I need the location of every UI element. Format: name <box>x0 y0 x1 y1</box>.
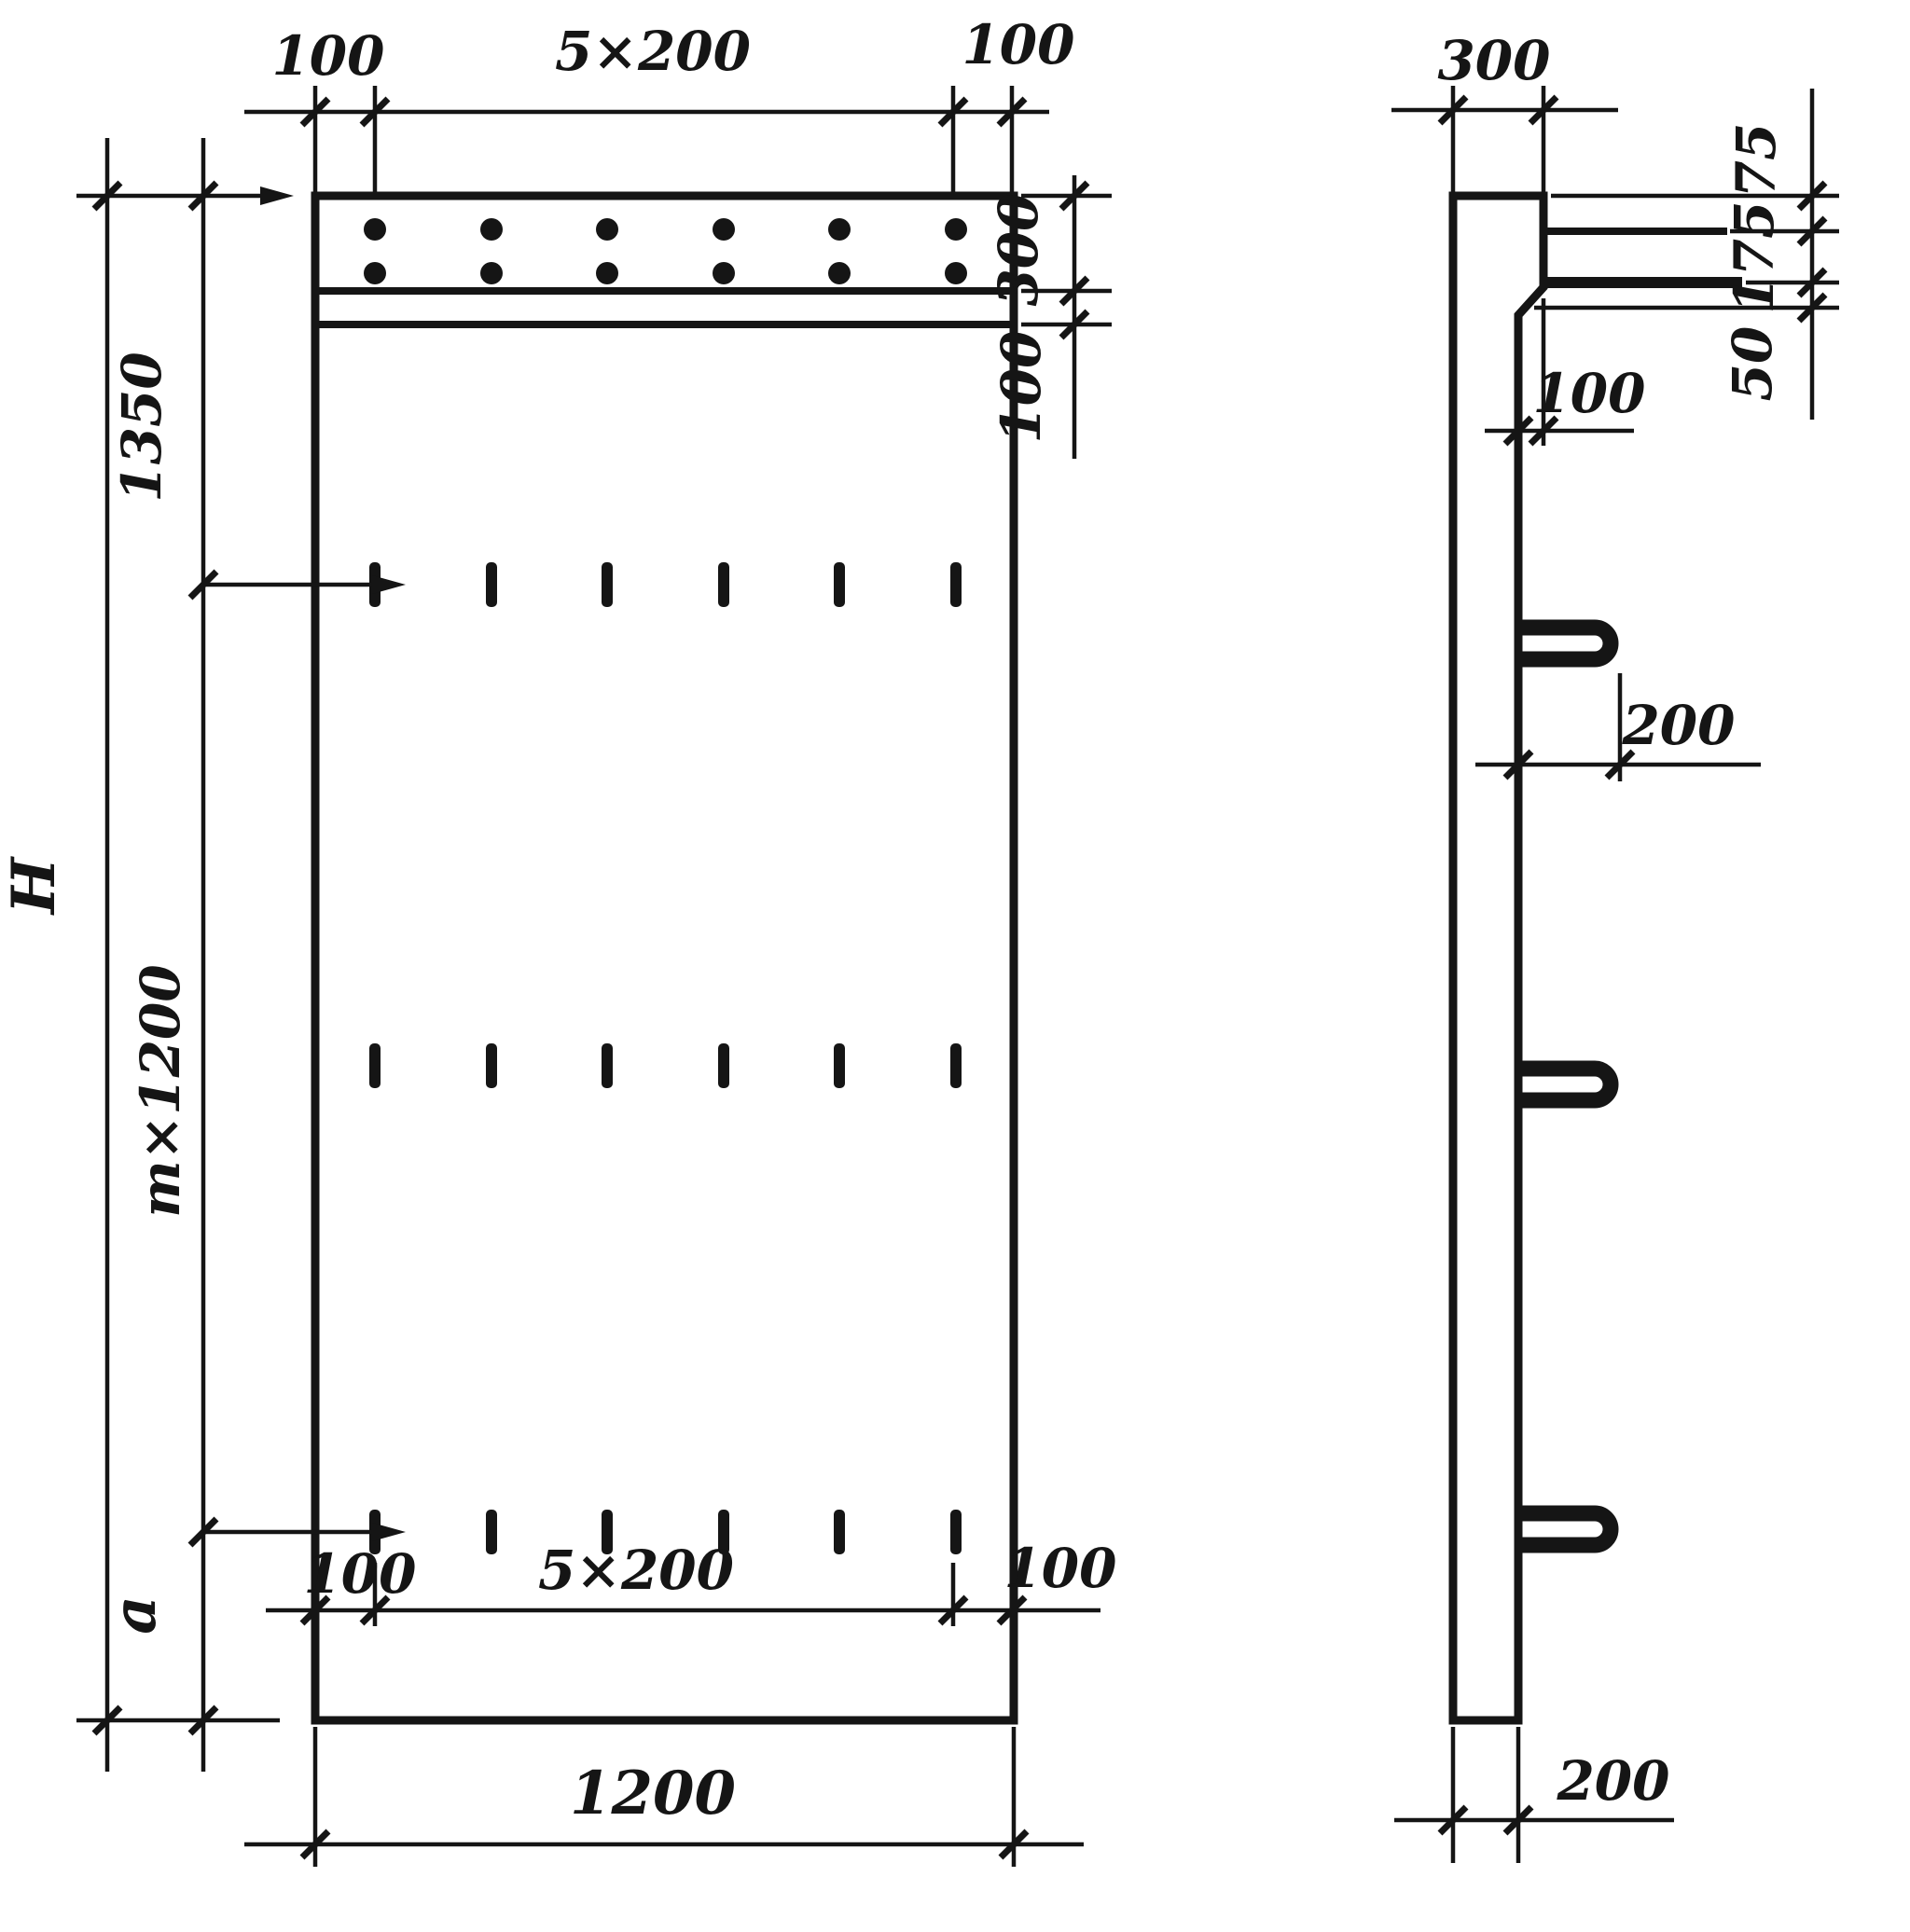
dim-label: 200 <box>1621 694 1735 757</box>
dim-label: 100 <box>1532 362 1645 425</box>
rebar-dash <box>950 1043 962 1088</box>
rebar-dash <box>602 1043 613 1088</box>
front-bottom-inner-dimension: 100 5×200 100 <box>266 1537 1117 1626</box>
front-panel-outline <box>315 196 1014 1720</box>
rebar-dash <box>486 1043 497 1088</box>
anchor-dot <box>945 218 967 241</box>
dim-label: 5×200 <box>555 20 751 83</box>
anchor-dot <box>364 262 386 284</box>
dim-label: 100 <box>962 13 1074 76</box>
dim-label: 175 <box>1723 200 1786 313</box>
dim-label: 100 <box>1003 1537 1116 1600</box>
dim-label: 100 <box>303 1542 416 1606</box>
front-view: 100 5×200 100 300 100 <box>0 13 1117 1867</box>
dim-label: 100 <box>271 24 384 88</box>
anchor-dot <box>713 262 735 284</box>
dim-arrow <box>260 186 294 205</box>
rebar-dash <box>718 1043 729 1088</box>
dim-label: a <box>100 1595 170 1634</box>
drawing-sheet: 100 5×200 100 300 100 <box>0 0 1910 1932</box>
dim-label: H <box>0 855 69 916</box>
dim-label: 200 <box>1556 1749 1669 1813</box>
lifting-loop <box>1518 1069 1611 1100</box>
rebar-dash <box>718 562 729 607</box>
anchor-dot <box>945 262 967 284</box>
rebar-dash <box>486 1510 497 1554</box>
dim-label: 100 <box>990 330 1053 443</box>
anchor-dot <box>828 262 851 284</box>
front-bottom-overall-dimension: 1200 <box>244 1727 1084 1867</box>
dim-label: 50 <box>1721 326 1784 402</box>
rebar-dash <box>486 562 497 607</box>
anchor-dot <box>713 218 735 241</box>
anchor-dot <box>596 218 618 241</box>
rebar-dash <box>602 562 613 607</box>
dim-label: 300 <box>987 193 1050 306</box>
dim-arrow <box>372 1523 406 1541</box>
anchor-dot <box>364 218 386 241</box>
anchor-dot <box>480 262 503 284</box>
dim-arrow <box>372 575 406 594</box>
technical-drawing: 100 5×200 100 300 100 <box>0 0 1910 1932</box>
front-left-dimension: 1350 H m×1200 a <box>0 138 406 1772</box>
dim-label: 1200 <box>570 1759 736 1828</box>
dim-label: 1350 <box>110 352 173 502</box>
dim-label: 75 <box>1724 123 1788 199</box>
dim-label: m×1200 <box>129 964 192 1217</box>
side-bottom-dimension: 200 <box>1394 1727 1674 1863</box>
side-top-dimension: 300 <box>1391 29 1618 192</box>
dim-label: 5×200 <box>538 1539 734 1602</box>
side-view: 300 75 175 50 100 <box>1391 29 1839 1863</box>
rebar-dash <box>950 562 962 607</box>
anchor-dots <box>364 218 967 284</box>
anchor-dot <box>480 218 503 241</box>
front-right-dimension: 300 100 <box>987 175 1112 459</box>
side-profile-outline <box>1453 196 1543 1720</box>
rebar-dash <box>834 1510 845 1554</box>
anchor-dot <box>596 262 618 284</box>
rebar-dashes <box>369 562 962 1554</box>
lifting-loop <box>1518 628 1611 659</box>
rebar-dash <box>834 1043 845 1088</box>
rebar-dash <box>369 1043 381 1088</box>
front-top-dimension: 100 5×200 100 <box>244 13 1075 192</box>
dim-label: 300 <box>1437 29 1550 92</box>
rebar-dash <box>950 1510 962 1554</box>
lifting-loop <box>1518 1513 1611 1545</box>
rebar-dash <box>834 562 845 607</box>
anchor-dot <box>828 218 851 241</box>
side-step-dimension: 100 <box>1485 298 1646 446</box>
